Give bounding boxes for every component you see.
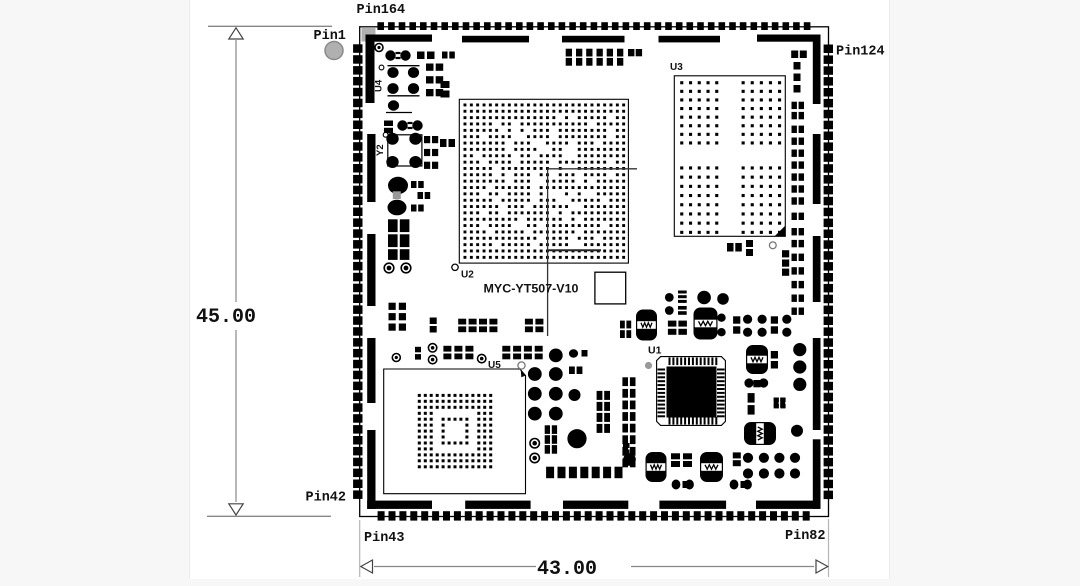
svg-text:45.00: 45.00 — [196, 306, 256, 329]
svg-text:U3: U3 — [670, 62, 683, 73]
svg-text:Pin42: Pin42 — [306, 491, 347, 506]
svg-text:Pin124: Pin124 — [836, 45, 885, 60]
svg-text:U1: U1 — [648, 345, 662, 357]
svg-text:Pin82: Pin82 — [785, 529, 826, 544]
svg-text:U5: U5 — [488, 360, 501, 371]
svg-text:Pin164: Pin164 — [357, 3, 406, 18]
svg-text:43.00: 43.00 — [537, 558, 597, 581]
svg-text:MYC-YT507-V10: MYC-YT507-V10 — [484, 282, 579, 296]
svg-text:Pin43: Pin43 — [364, 531, 405, 546]
svg-text:U4: U4 — [374, 79, 385, 92]
svg-text:Y2: Y2 — [375, 144, 386, 156]
svg-text:U2: U2 — [461, 270, 474, 281]
